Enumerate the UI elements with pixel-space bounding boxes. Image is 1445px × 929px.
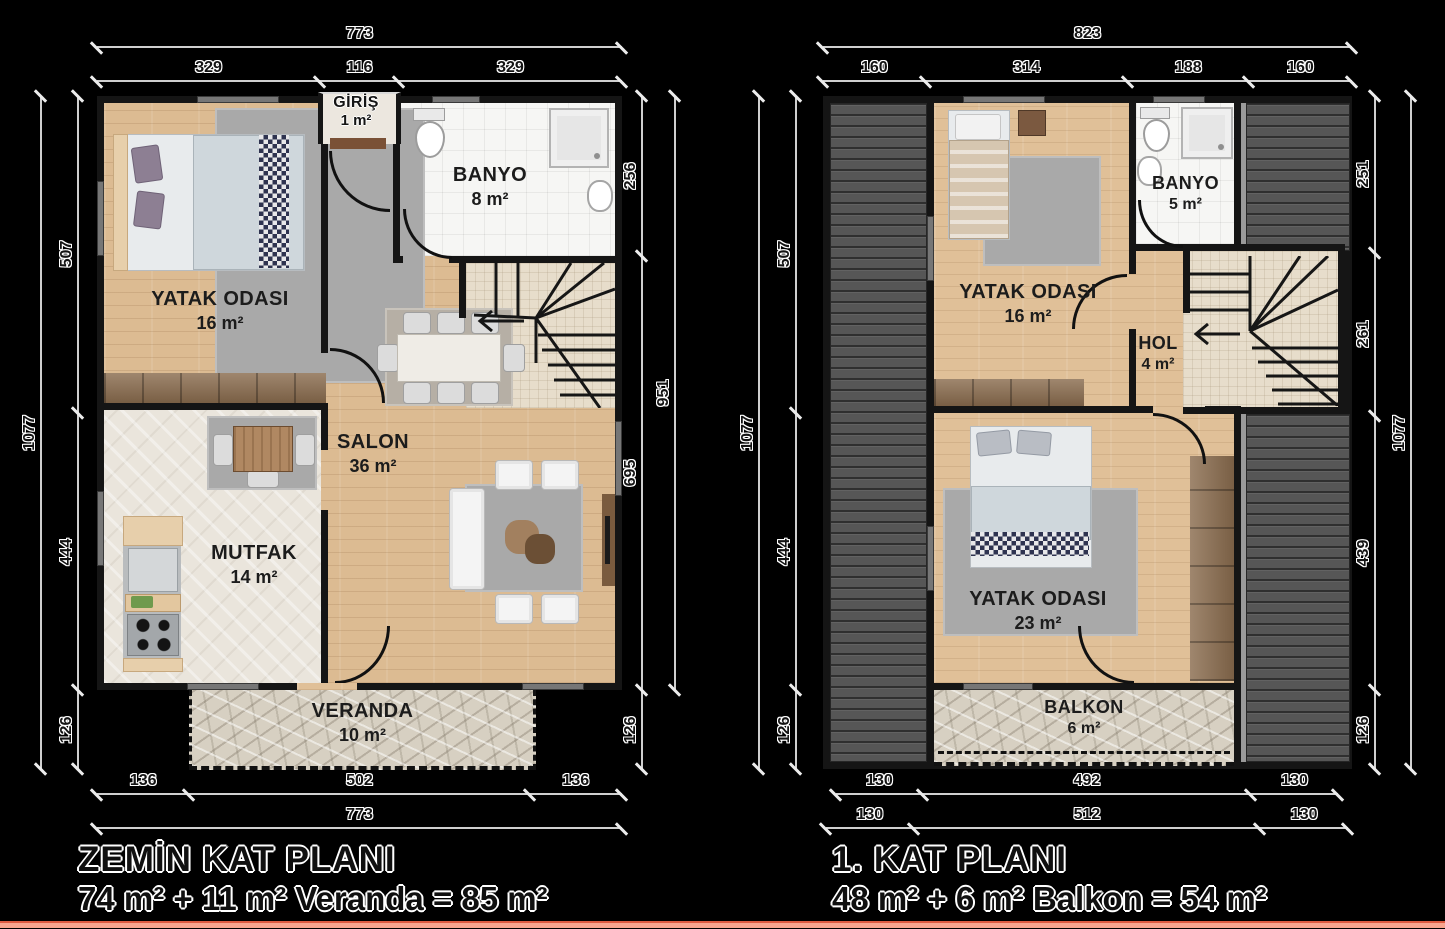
armchair-icon (495, 460, 533, 490)
chair-icon (377, 344, 399, 372)
ff-dim-top-segments: 160 314 188 160 (823, 80, 1352, 82)
dim-tick (90, 41, 103, 54)
dim-tick (668, 683, 681, 696)
first-floor-title: 1. KAT PLANI (832, 840, 1067, 880)
dim-tick (90, 822, 103, 835)
wall (104, 403, 328, 410)
dimension-label: 130 (866, 772, 893, 790)
dim-tick (789, 406, 802, 419)
room-label-bedroom: YATAK ODASI 16 m² (130, 286, 310, 335)
bed-pillow (133, 190, 165, 229)
wall (393, 256, 403, 263)
roof-slope (1241, 414, 1350, 762)
dim-tick (522, 788, 535, 801)
bed-pillow (976, 429, 1012, 456)
dim-tick (906, 822, 919, 835)
wall (321, 510, 328, 683)
gf-dim-top-segments: 329 116 329 (97, 80, 622, 82)
chair-icon (403, 312, 431, 334)
dimension-label: 136 (130, 772, 157, 790)
shower-drain-icon (594, 153, 600, 159)
dimension-label: 329 (195, 59, 222, 77)
shower-icon (1181, 107, 1233, 159)
stairs-icon (1188, 256, 1338, 406)
dim-tick (90, 788, 103, 801)
dimension-label: 160 (1287, 59, 1314, 77)
dimension-label: 314 (1013, 59, 1040, 77)
sofa-icon (449, 488, 485, 590)
dimension-label: 502 (346, 772, 373, 790)
room-area: 16 m² (130, 312, 310, 335)
dimension-label: 444 (776, 538, 794, 565)
veranda: VERANDA 10 m² (189, 690, 536, 770)
dimension-label: 1077 (1391, 415, 1409, 451)
window-marker (97, 181, 104, 256)
dimension-label: 507 (58, 241, 76, 268)
ff-dim-bottom-upper: 130 492 130 (836, 793, 1338, 795)
room-label-hall: HOL 4 m² (1113, 332, 1203, 376)
dimension-label: 695 (622, 460, 640, 487)
wall (934, 406, 1136, 413)
dim-tick (1345, 41, 1358, 54)
chair-icon (437, 382, 465, 404)
balcony-edge-dashes (938, 751, 1230, 754)
room-label-bedroom2: YATAK ODASI 23 m² (948, 586, 1128, 635)
dimension-label: 188 (1175, 59, 1202, 77)
dimension-label: 329 (497, 59, 524, 77)
room-area: 8 m² (415, 188, 565, 211)
room-area: 16 m² (938, 305, 1118, 328)
window-marker (615, 421, 622, 496)
room-name: HOL (1113, 332, 1203, 355)
shower-drain-icon (1218, 144, 1224, 150)
dim-tick (615, 75, 628, 88)
wall (449, 256, 615, 263)
dimension-label: 261 (1355, 321, 1373, 348)
bed-headboard (113, 134, 128, 271)
dim-tick (1368, 762, 1381, 775)
bed-pillow (131, 144, 164, 184)
ff-dim-left-total: 1077 (758, 96, 760, 769)
dim-tick (1345, 75, 1358, 88)
ff-dim-bottom-lower: 130 512 130 (826, 827, 1348, 829)
chair-icon (213, 434, 233, 466)
gf-dim-bottom-total: 773 (97, 827, 622, 829)
dim-tick (182, 788, 195, 801)
dim-tick (1368, 246, 1381, 259)
dimension-label: 507 (776, 241, 794, 268)
dimension-label: 512 (1074, 806, 1101, 824)
room-name: YATAK ODASI (948, 586, 1128, 612)
bed-throw (259, 135, 289, 268)
wardrobe-icon (104, 373, 326, 403)
tv-icon (605, 516, 610, 564)
dimension-label: 126 (776, 716, 794, 743)
dim-tick (635, 762, 648, 775)
dim-tick (1368, 409, 1381, 422)
wall (1135, 683, 1241, 690)
dimension-label: 773 (346, 25, 373, 43)
dim-tick (752, 762, 765, 775)
window-marker (197, 96, 279, 103)
room-name: YATAK ODASI (130, 286, 310, 312)
dim-tick (816, 75, 829, 88)
dim-tick (829, 788, 842, 801)
dim-tick (1368, 684, 1381, 697)
gf-dim-left-segments: 507 444 126 (77, 96, 79, 769)
dim-tick (1404, 89, 1417, 102)
ground-floor-plan: YATAK ODASI 16 m² BANYO 8 m² SALON 36 m²… (97, 96, 622, 690)
dim-tick (1331, 788, 1344, 801)
dimension-label: 951 (655, 380, 673, 407)
dimension-label: 126 (58, 716, 76, 743)
room-name: BALKON (934, 696, 1234, 719)
wall (1136, 406, 1153, 413)
dim-tick (789, 89, 802, 102)
dim-tick (916, 788, 929, 801)
gf-dim-top-total: 773 (97, 46, 622, 48)
floor-plan-sheet: 773 329 116 329 1077 507 444 126 256 695… (0, 0, 1445, 929)
room-label-bathroom: BANYO 8 m² (415, 162, 565, 211)
dim-tick (34, 762, 47, 775)
dimension-label: 130 (856, 806, 883, 824)
room-label-balcony: BALKON 6 m² (934, 696, 1234, 740)
dim-tick (752, 89, 765, 102)
dim-tick (635, 249, 648, 262)
window-marker (927, 216, 934, 281)
chair-icon (247, 470, 279, 488)
room-label-kitchen: MUTFAK 14 m² (174, 540, 334, 589)
first-floor-plan: BALKON 6 m² YATAK ODASI 16 m² BANYO 5 m²… (823, 96, 1352, 769)
dim-tick (668, 89, 681, 102)
dim-tick (71, 89, 84, 102)
dim-tick (313, 75, 326, 88)
room-label-veranda: VERANDA 10 m² (192, 698, 533, 747)
bed-pillow (1016, 430, 1052, 457)
room-area: 10 m² (192, 724, 533, 747)
dimension-label: 126 (622, 716, 640, 743)
kitchen-sink-icon (128, 548, 178, 592)
window-marker (97, 491, 104, 566)
dimension-label: 439 (1355, 540, 1373, 567)
dim-tick (635, 89, 648, 102)
dim-tick (789, 762, 802, 775)
gf-dim-left-total: 1077 (40, 96, 42, 769)
room-area: 6 m² (934, 719, 1234, 740)
sink-basin-icon (587, 180, 613, 212)
dim-tick (615, 788, 628, 801)
wardrobe-icon (934, 379, 1084, 406)
dimension-label: 492 (1074, 772, 1101, 790)
dimension-label: 444 (58, 538, 76, 565)
nightstand-icon (1018, 110, 1046, 136)
room-label-bathroom: BANYO 5 m² (1128, 172, 1243, 216)
room-area: 23 m² (948, 612, 1128, 635)
dim-tick (1341, 822, 1354, 835)
dim-tick (71, 762, 84, 775)
bed-throw (971, 532, 1089, 556)
window-marker (522, 683, 584, 690)
toilet-icon (413, 108, 445, 121)
window-marker (1153, 96, 1205, 103)
ff-dim-top-total: 823 (823, 46, 1352, 48)
window-marker (963, 96, 1045, 103)
kitchen-table-icon (233, 426, 293, 472)
dim-tick (392, 75, 405, 88)
dimension-label: 773 (346, 806, 373, 824)
gf-dim-right-total: 951 (674, 96, 676, 690)
room-label-entry: GİRİŞ 1 m² (312, 94, 400, 130)
window-marker (927, 526, 934, 591)
room-name: BANYO (415, 162, 565, 188)
dimension-label: 116 (347, 59, 373, 77)
room-area: 1 m² (312, 112, 400, 129)
balcony: BALKON 6 m² (934, 690, 1234, 766)
dim-tick (1244, 788, 1257, 801)
dim-tick (34, 89, 47, 102)
veranda-door-opening (297, 683, 357, 690)
roof-slope (1241, 103, 1350, 251)
dim-tick (789, 684, 802, 697)
dim-tick (1120, 75, 1133, 88)
dim-tick (1404, 762, 1417, 775)
vegetables-icon (131, 596, 153, 608)
bed-blanket (949, 140, 1009, 239)
room-area: 5 m² (1128, 195, 1243, 216)
ground-floor-title: ZEMİN KAT PLANI (78, 840, 396, 880)
dim-tick (90, 75, 103, 88)
window-marker (432, 96, 480, 103)
entry-sill (330, 138, 386, 149)
dim-tick (1253, 822, 1266, 835)
dim-tick (816, 41, 829, 54)
dim-tick (819, 822, 832, 835)
window-marker (187, 683, 259, 690)
dim-tick (71, 684, 84, 697)
dim-tick (71, 406, 84, 419)
cooktop-icon (127, 614, 179, 656)
wall (927, 103, 934, 762)
dim-tick (635, 684, 648, 697)
first-floor-subtitle: 48 m² + 6 m² Balkon = 54 m² (832, 880, 1267, 918)
dim-tick (615, 822, 628, 835)
dim-tick (615, 41, 628, 54)
room-name: GİRİŞ (312, 94, 400, 112)
room-name: VERANDA (192, 698, 533, 724)
gf-dim-right-segments: 256 695 126 (641, 96, 643, 769)
room-name: YATAK ODASI (938, 279, 1118, 305)
toilet-icon (1140, 107, 1170, 119)
wall (1129, 244, 1345, 251)
armchair-icon (495, 594, 533, 624)
ff-dim-right-segments: 251 261 439 126 (1374, 96, 1376, 769)
room-area: 36 m² (293, 455, 453, 478)
footer-accent-line (0, 921, 1445, 928)
dimension-label: 256 (622, 163, 640, 190)
dimension-label: 136 (562, 772, 589, 790)
dimension-label: 130 (1291, 806, 1318, 824)
bed-pillow (955, 114, 1001, 140)
dimension-label: 130 (1281, 772, 1308, 790)
dimension-label: 1077 (739, 415, 757, 451)
coffee-table-icon (525, 534, 555, 564)
room-label-living: SALON 36 m² (293, 429, 453, 478)
wardrobe-icon (1190, 456, 1234, 681)
ff-dim-right-total: 1077 (1410, 96, 1412, 769)
dim-tick (1368, 89, 1381, 102)
armchair-icon (541, 594, 579, 624)
counter-cabinet (123, 658, 183, 672)
dimension-label: 126 (1355, 716, 1373, 743)
gf-dim-bottom-segments: 136 502 136 (97, 793, 622, 795)
shower-icon (549, 108, 609, 168)
window-marker (963, 683, 1033, 690)
roof-slope (830, 103, 932, 762)
dimension-label: 251 (1355, 161, 1373, 188)
armchair-icon (541, 460, 579, 490)
ground-floor-subtitle: 74 m² + 11 m² Veranda = 85 m² (78, 880, 548, 918)
stairs-icon (466, 263, 615, 408)
room-label-bedroom1: YATAK ODASI 16 m² (938, 279, 1118, 328)
wall (1234, 414, 1241, 762)
dim-tick (1242, 75, 1255, 88)
room-area: 4 m² (1113, 355, 1203, 376)
room-name: SALON (293, 429, 453, 455)
dim-tick (918, 75, 931, 88)
ff-dim-left-segments: 507 444 126 (795, 96, 797, 769)
dimension-label: 160 (861, 59, 888, 77)
dimension-label: 1077 (21, 415, 39, 451)
chair-icon (403, 382, 431, 404)
dimension-label: 823 (1074, 25, 1101, 43)
wall (459, 263, 466, 318)
room-name: MUTFAK (174, 540, 334, 566)
room-name: BANYO (1128, 172, 1243, 195)
room-area: 14 m² (174, 566, 334, 589)
wall (1183, 251, 1190, 313)
wall (1205, 406, 1241, 413)
